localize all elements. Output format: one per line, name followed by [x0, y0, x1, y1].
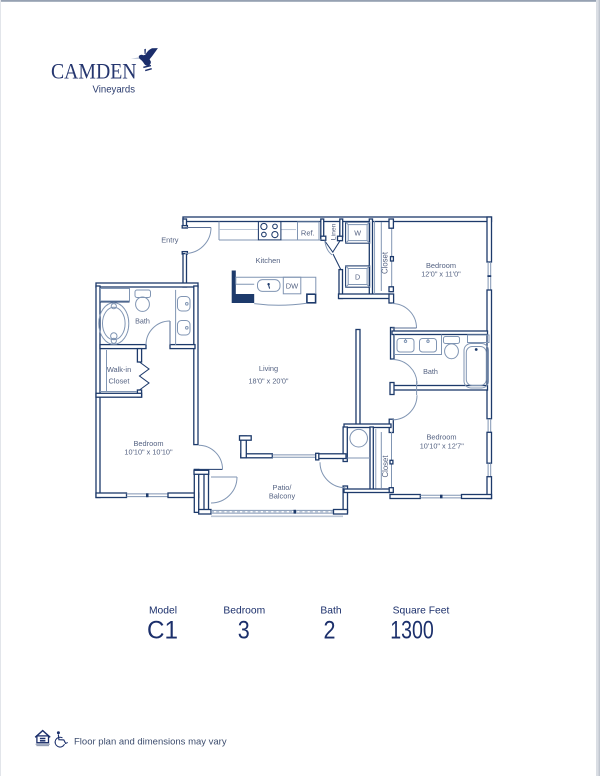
svg-text:1300: 1300	[390, 617, 434, 645]
svg-text:Ref.: Ref.	[301, 229, 315, 238]
svg-text:Linen: Linen	[331, 223, 338, 240]
svg-text:Entry: Entry	[161, 235, 179, 244]
svg-text:Floor plan and dimensions may: Floor plan and dimensions may vary	[74, 736, 227, 747]
svg-text:D: D	[355, 272, 360, 281]
svg-text:Model: Model	[149, 605, 177, 616]
svg-text:Vineyards: Vineyards	[93, 83, 136, 95]
svg-text:3: 3	[238, 617, 250, 645]
svg-text:Bedroom: Bedroom	[427, 433, 457, 442]
svg-text:2: 2	[324, 617, 336, 645]
svg-text:DW: DW	[286, 282, 299, 291]
svg-text:Living: Living	[259, 364, 278, 373]
svg-text:Closet: Closet	[380, 251, 389, 274]
svg-text:Closet: Closet	[381, 455, 390, 478]
svg-text:W: W	[354, 228, 361, 237]
svg-text:Walk-in: Walk-in	[107, 365, 131, 374]
svg-text:Bedroom: Bedroom	[223, 605, 265, 616]
svg-text:Bath: Bath	[423, 367, 438, 376]
svg-text:Patio/: Patio/	[273, 483, 293, 492]
svg-text:10'10" x 10'10": 10'10" x 10'10"	[124, 448, 173, 457]
svg-text:10'10" x 12'7": 10'10" x 12'7"	[420, 442, 464, 451]
svg-text:Square Feet: Square Feet	[393, 605, 450, 616]
svg-text:12'0" x 11'0": 12'0" x 11'0"	[421, 270, 461, 279]
svg-text:CAMDEN: CAMDEN	[51, 59, 137, 84]
svg-text:18'0" x 20'0": 18'0" x 20'0"	[248, 376, 288, 385]
svg-text:Bath: Bath	[135, 317, 150, 326]
svg-text:Bath: Bath	[320, 605, 341, 616]
svg-text:Closet: Closet	[109, 377, 130, 386]
svg-text:C1: C1	[147, 617, 178, 645]
svg-text:Balcony: Balcony	[269, 492, 296, 501]
svg-text:Kitchen: Kitchen	[256, 256, 281, 265]
